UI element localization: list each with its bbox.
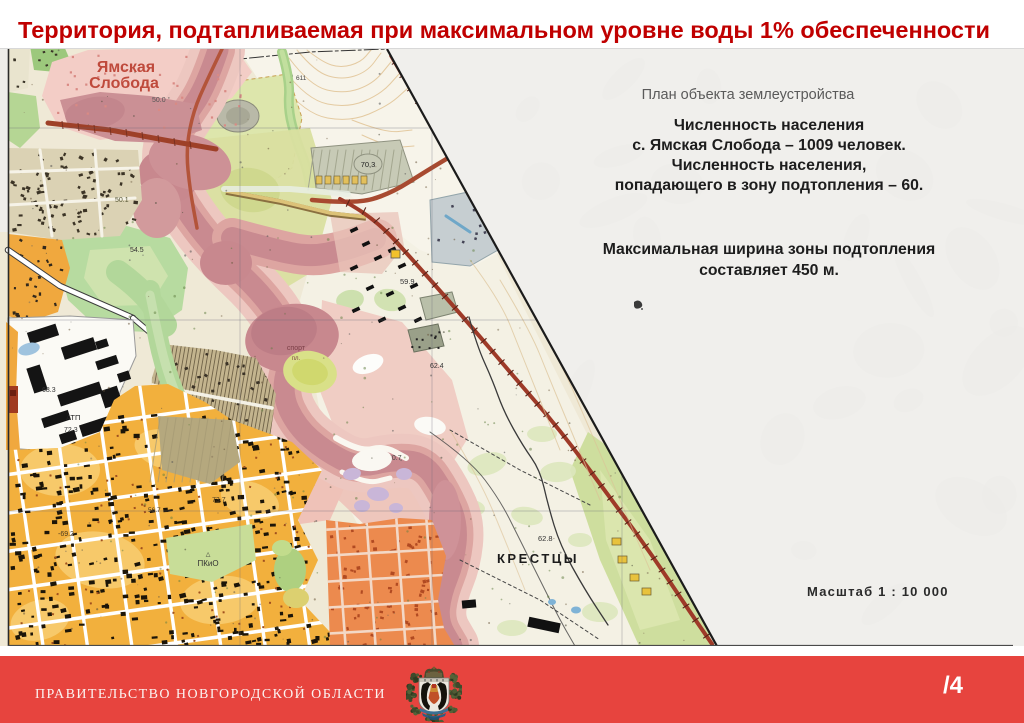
svg-text:-69.2: -69.2 bbox=[58, 531, 74, 538]
svg-text:50.1: 50.1 bbox=[115, 197, 129, 204]
svg-text:пл.: пл. bbox=[292, 356, 301, 362]
svg-text:62.4: 62.4 bbox=[430, 363, 444, 370]
svg-text:70,3: 70,3 bbox=[361, 160, 376, 169]
svg-text:Ямская: Ямская bbox=[97, 59, 155, 76]
svg-text:611: 611 bbox=[296, 75, 307, 82]
svg-text:54.5: 54.5 bbox=[130, 247, 144, 254]
svg-text:72.3: 72.3 bbox=[64, 427, 78, 434]
svg-text:68.3: 68.3 bbox=[42, 387, 56, 394]
svg-text:62.8: 62.8 bbox=[538, 534, 553, 543]
svg-text:КРЕСТЦЫ: КРЕСТЦЫ bbox=[497, 551, 579, 566]
svg-text:АТП: АТП bbox=[66, 413, 80, 422]
svg-text:73.7: 73.7 bbox=[212, 497, 226, 504]
svg-text:спорт: спорт bbox=[287, 345, 306, 352]
svg-text:△: △ bbox=[206, 552, 211, 558]
svg-text:ПКиО: ПКиО bbox=[197, 559, 218, 568]
svg-text:50.0: 50.0 bbox=[152, 97, 166, 104]
svg-text:Слобода: Слобода bbox=[89, 75, 159, 92]
svg-text:56.7: 56.7 bbox=[148, 507, 161, 514]
svg-text:59.9: 59.9 bbox=[400, 277, 415, 286]
